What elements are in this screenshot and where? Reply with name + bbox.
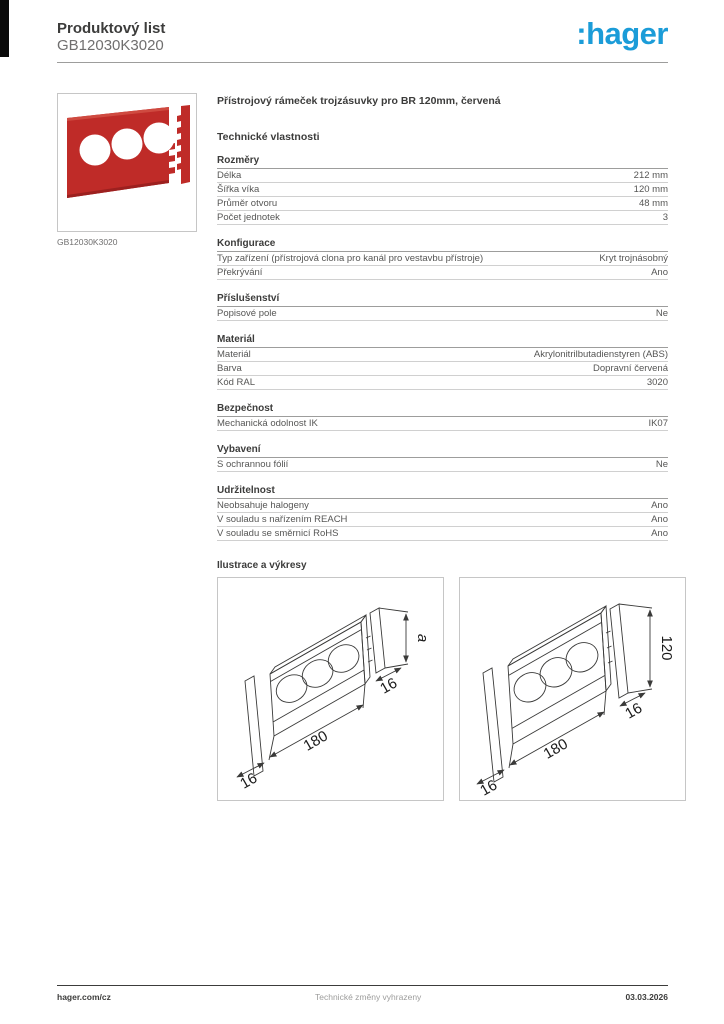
spec-value: Ano [651, 268, 668, 278]
section-title: Materiál [217, 334, 668, 348]
spec-label: Délka [217, 171, 241, 181]
spec-row: Délka212 mm [217, 169, 668, 183]
section-title: Udržitelnost [217, 485, 668, 499]
spec-value: 48 mm [639, 199, 668, 209]
footer-date: 03.03.2026 [625, 992, 668, 1002]
spec-value: Dopravní červená [593, 364, 668, 374]
footer-divider [57, 985, 668, 986]
dim-label-height: a [414, 634, 431, 642]
dim-label-height: 120 [658, 635, 675, 660]
tech-properties-heading: Technické vlastnosti [217, 131, 668, 143]
spec-value: Kryt trojnásobný [599, 254, 668, 264]
spec-row: V souladu se směrnicí RoHSAno [217, 527, 668, 541]
drawing-2-graphic: 180 16 16 120 [460, 578, 685, 800]
section-title: Bezpečnost [217, 403, 668, 417]
spec-label: V souladu s nařízením REACH [217, 515, 347, 525]
spec-label: Počet jednotek [217, 213, 280, 223]
spec-row: Šířka víka120 mm [217, 183, 668, 197]
spec-label: Překrývání [217, 268, 262, 278]
scan-artifact-bar [0, 0, 9, 57]
product-code: GB12030K3020 [57, 37, 165, 54]
spec-row: Neobsahuje halogenyAno [217, 499, 668, 513]
section-title: Rozměry [217, 155, 668, 169]
spec-value: 3 [663, 213, 668, 223]
spec-row: V souladu s nařízením REACHAno [217, 513, 668, 527]
spec-row: MateriálAkrylonitrilbutadienstyren (ABS) [217, 348, 668, 362]
spec-column: Rozměry Délka212 mm Šířka víka120 mm Prů… [217, 155, 668, 801]
section-material: Materiál MateriálAkrylonitrilbutadiensty… [217, 334, 668, 390]
doc-type-title: Produktový list [57, 20, 165, 37]
spec-value: IK07 [648, 419, 668, 429]
product-title: Přístrojový rámeček trojzásuvky pro BR 1… [217, 95, 668, 107]
spec-label: S ochrannou fólií [217, 460, 288, 470]
hager-logo: :hager [576, 18, 668, 50]
spec-label: Neobsahuje halogeny [217, 501, 309, 511]
section-rozmery: Rozměry Délka212 mm Šířka víka120 mm Prů… [217, 155, 668, 225]
section-vybaveni: Vybavení S ochrannou fóliíNe [217, 444, 668, 472]
header-divider [57, 62, 668, 63]
spec-label: Šířka víka [217, 185, 259, 195]
spec-value: Ano [651, 501, 668, 511]
spec-row: Průměr otvoru48 mm [217, 197, 668, 211]
footer-website-link[interactable]: hager.com/cz [57, 992, 111, 1002]
spec-label: Průměr otvoru [217, 199, 277, 209]
technical-drawing-2: 180 16 16 120 [459, 577, 686, 801]
spec-row: S ochrannou fóliíNe [217, 458, 668, 472]
section-title: Konfigurace [217, 238, 668, 252]
dim-label-side: 16 [237, 770, 260, 793]
spec-row: PřekrýváníAno [217, 266, 668, 280]
spec-row: Mechanická odolnost IKIK07 [217, 417, 668, 431]
spec-row: Typ zařízení (přístrojová clona pro kaná… [217, 252, 668, 266]
spec-label: Mechanická odolnost IK [217, 419, 318, 429]
product-photo [57, 93, 197, 232]
spec-label: Kód RAL [217, 378, 255, 388]
document-header: Produktový list GB12030K3020 [57, 20, 165, 54]
dim-label-length: 180 [301, 727, 331, 754]
footer-disclaimer: Technické změny vyhrazeny [315, 992, 421, 1002]
spec-label: V souladu se směrnicí RoHS [217, 529, 338, 539]
spec-row: Počet jednotek3 [217, 211, 668, 225]
spec-value: Ano [651, 529, 668, 539]
spec-label: Materiál [217, 350, 251, 360]
section-konfigurace: Konfigurace Typ zařízení (přístrojová cl… [217, 238, 668, 280]
section-title: Vybavení [217, 444, 668, 458]
section-prislusenstvi: Příslušenství Popisové poleNe [217, 293, 668, 321]
dim-label-end: 16 [377, 675, 400, 698]
drawing-1-graphic: 180 16 16 a [218, 578, 443, 800]
footer: hager.com/cz Technické změny vyhrazeny 0… [57, 992, 668, 1002]
section-title: Příslušenství [217, 293, 668, 307]
dim-label-length: 180 [541, 735, 571, 762]
spec-value: Ne [656, 460, 668, 470]
spec-row: Popisové poleNe [217, 307, 668, 321]
spec-label: Barva [217, 364, 242, 374]
spec-value: Ne [656, 309, 668, 319]
product-photo-graphic [58, 94, 196, 231]
spec-label: Popisové pole [217, 309, 277, 319]
spec-label: Typ zařízení (přístrojová clona pro kaná… [217, 254, 483, 264]
spec-value: 212 mm [634, 171, 668, 181]
illustrations-heading: Ilustrace a výkresy [217, 560, 668, 571]
spec-value: Ano [651, 515, 668, 525]
product-photo-caption: GB12030K3020 [57, 237, 118, 247]
spec-row: BarvaDopravní červená [217, 362, 668, 376]
spec-value: 120 mm [634, 185, 668, 195]
spec-value: 3020 [647, 378, 668, 388]
spec-value: Akrylonitrilbutadienstyren (ABS) [534, 350, 668, 360]
datasheet-page: Produktový list GB12030K3020 :hager GB12… [0, 0, 724, 1024]
technical-drawing-1: 180 16 16 a [217, 577, 444, 801]
drawings-row: 180 16 16 a [217, 577, 686, 801]
spec-row: Kód RAL3020 [217, 376, 668, 390]
section-bezpecnost: Bezpečnost Mechanická odolnost IKIK07 [217, 403, 668, 431]
section-udrzitelnost: Udržitelnost Neobsahuje halogenyAno V so… [217, 485, 668, 541]
